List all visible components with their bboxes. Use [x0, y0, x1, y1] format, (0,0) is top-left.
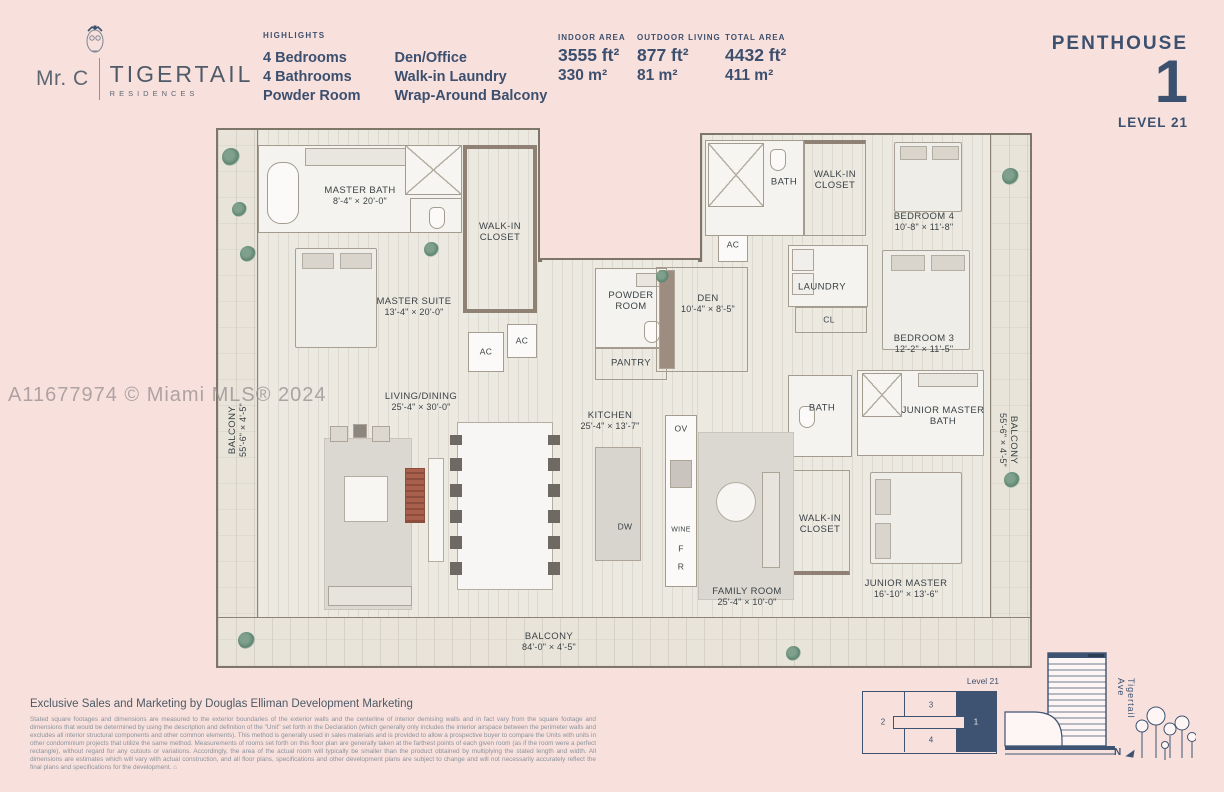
label-fridge: F [678, 544, 684, 555]
highlight-item: Powder Room [263, 87, 360, 106]
label-bedroom3: BEDROOM 312'-2" × 11'-5" [894, 333, 955, 355]
equal-housing-icon: ⌂ [173, 764, 177, 771]
room-den [656, 267, 748, 372]
label-master-suite: MASTER SUITE13'-4" × 20'-0" [376, 296, 451, 318]
plant-icon [786, 646, 801, 661]
highlight-item: 4 Bathrooms [263, 68, 360, 87]
stat-outdoor-living: OUTDOOR LIVING 877 ft² 81 m² [637, 33, 721, 85]
keyplan-unit-3: 3 [929, 701, 933, 710]
label-wic-jr: WALK-IN CLOSET [792, 513, 848, 535]
toilet [429, 207, 445, 229]
label-balcony-right: BALCONY55'-6" × 4'-5" [997, 413, 1019, 467]
sideboard [428, 458, 444, 562]
label-ac: AC [727, 240, 739, 251]
dining-chairs [548, 435, 560, 575]
unit-title-block: PENTHOUSE 1 LEVEL 21 [988, 33, 1188, 130]
water-closet [410, 198, 462, 233]
highlights-block: HIGHLIGHTS 4 Bedrooms 4 Bathrooms Powder… [263, 31, 547, 106]
sofa [328, 586, 412, 606]
label-jr-master-bath: JUNIOR MASTER BATH [900, 405, 986, 427]
north-label: N [1114, 747, 1121, 758]
balcony-right [990, 135, 1030, 666]
label-living-dining: LIVING/DINING25'-4" × 30'-0" [385, 391, 457, 413]
console [405, 468, 425, 523]
label-bath4: BATH [771, 177, 797, 188]
label-closet: CL [823, 315, 834, 326]
plant-icon [656, 270, 669, 283]
owl-icon [82, 22, 108, 54]
bathtub [267, 162, 299, 224]
plant-icon [1004, 472, 1020, 488]
stat-label: OUTDOOR LIVING [637, 33, 721, 42]
shower [405, 145, 462, 195]
master-bed [295, 248, 377, 348]
label-bath-jr: BATH [809, 403, 835, 414]
den-shelving [659, 270, 675, 369]
stat-value-ft: 4432 ft² [725, 45, 786, 66]
plant-icon [232, 202, 247, 217]
stat-label: INDOOR AREA [558, 33, 626, 42]
cooktop [670, 460, 692, 488]
plant-icon [240, 246, 256, 262]
plant-icon [238, 632, 255, 649]
mls-watermark: A11677974 © Miami MLS® 2024 [8, 384, 326, 407]
label-master-wic: WALK-IN CLOSET [471, 221, 529, 243]
label-jr-master: JUNIOR MASTER16'-10" × 13'-6" [865, 578, 948, 600]
label-wic-bed4: WALK-IN CLOSET [807, 169, 863, 191]
stat-indoor-area: INDOOR AREA 3555 ft² 330 m² [558, 33, 626, 85]
label-refrigerator: R [678, 562, 684, 573]
label-oven: OV [675, 424, 688, 435]
label-den: DEN10'-4" × 8'-5" [681, 293, 735, 315]
highlights-col2: Den/Office Walk-in Laundry Wrap-Around B… [394, 49, 547, 106]
flyer-page: Mr. C TIGERTAIL RESIDENCES HIGHLIGHTS 4 … [0, 0, 1224, 792]
room-bath-jr [788, 375, 852, 457]
stat-total-area: TOTAL AREA 4432 ft² 411 m² [725, 33, 786, 85]
unit-number: 1 [988, 55, 1188, 109]
label-wine: WINE [671, 525, 690, 536]
plant-icon [424, 242, 439, 257]
label-pantry: PANTRY [611, 358, 651, 369]
balcony-bottom [218, 617, 1030, 666]
label-master-bath: MASTER BATH8'-4" × 20'-0" [324, 185, 395, 207]
trees-icon [1132, 702, 1196, 762]
legal-disclaimer: Stated square footages and dimensions ar… [30, 716, 596, 772]
side-table [353, 424, 367, 438]
label-dishwasher: DW [618, 522, 633, 533]
keyplan-unit-2: 2 [881, 718, 885, 727]
pillow [302, 253, 334, 269]
toilet [770, 149, 786, 171]
bedroom4-bed [894, 142, 962, 212]
brand-mrc: Mr. C [36, 67, 89, 91]
keyplan-outline: 1 2 3 4 [862, 691, 997, 754]
pillow [932, 146, 959, 160]
label-powder-room: POWDER ROOM [600, 290, 662, 312]
round-coffee-table [716, 482, 756, 522]
jr-master-bed [870, 472, 962, 564]
pillow [875, 523, 891, 559]
stat-value-m: 411 m² [725, 67, 786, 85]
stat-value-m: 330 m² [558, 67, 626, 85]
armchair [372, 426, 390, 442]
highlight-item: Den/Office [394, 49, 547, 68]
label-balcony-bottom: BALCONY84'-0" × 4'-5" [522, 631, 576, 653]
pillow [891, 255, 925, 271]
stat-value-ft: 3555 ft² [558, 45, 626, 66]
coffee-table [344, 476, 388, 522]
dining-table [457, 422, 553, 590]
keyplan-corridor [893, 716, 965, 729]
vanity [918, 373, 978, 387]
plant-icon [1002, 168, 1019, 185]
stat-label: TOTAL AREA [725, 33, 786, 42]
keyplan: Level 21 1 2 3 4 [862, 676, 1002, 758]
label-family-room: FAMILY ROOM25'-4" × 10'-0" [712, 586, 782, 608]
north-arrow: N [1114, 742, 1134, 760]
keyplan-level-label: Level 21 [967, 676, 999, 686]
shower [862, 373, 902, 417]
kitchen-island [595, 447, 641, 561]
label-bedroom4: BEDROOM 410'-8" × 11'-8" [894, 211, 955, 233]
brand-divider [99, 58, 100, 100]
highlights-title: HIGHLIGHTS [263, 31, 547, 40]
building-illustration [1000, 650, 1130, 762]
highlight-item: Walk-in Laundry [394, 68, 547, 87]
pillow [931, 255, 965, 271]
floor-plan: MASTER BATH8'-4" × 20'-0" WALK-IN CLOSET… [216, 120, 1032, 672]
keyplan-unit-4: 4 [929, 736, 933, 745]
marketing-credit: Exclusive Sales and Marketing by Douglas… [30, 698, 413, 710]
living-rug [324, 438, 412, 610]
label-ac: AC [516, 336, 528, 347]
label-balcony-left: BALCONY55'-6" × 4'-5" [227, 403, 249, 457]
armchair [330, 426, 348, 442]
dining-chairs [450, 435, 462, 575]
highlight-item: Wrap-Around Balcony [394, 87, 547, 106]
highlight-item: 4 Bedrooms [263, 49, 360, 68]
shower [708, 143, 764, 207]
label-ac: AC [480, 347, 492, 358]
stat-value-m: 81 m² [637, 67, 721, 85]
label-kitchen: KITCHEN25'-4" × 13'-7" [580, 410, 639, 432]
room-bath4 [705, 140, 804, 236]
brand-name: TIGERTAIL [110, 61, 254, 88]
pillow [900, 146, 927, 160]
plant-icon [222, 148, 240, 166]
pillow [875, 479, 891, 515]
stat-value-ft: 877 ft² [637, 45, 721, 66]
washer [792, 249, 814, 271]
brand-sub: RESIDENCES [110, 89, 254, 98]
highlights-col1: 4 Bedrooms 4 Bathrooms Powder Room [263, 49, 360, 106]
pillow [340, 253, 372, 269]
label-laundry: LAUNDRY [798, 282, 846, 293]
family-sofa [762, 472, 780, 568]
room-laundry [788, 245, 868, 307]
